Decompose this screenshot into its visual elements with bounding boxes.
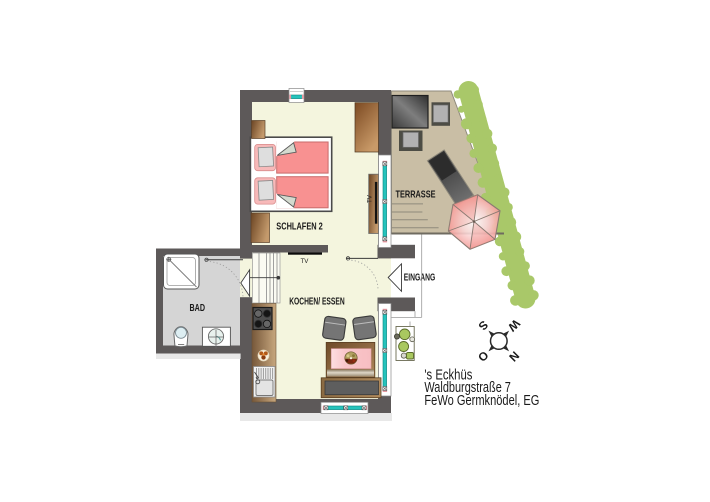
svg-text:EINGANG: EINGANG [404, 272, 436, 283]
svg-text:KOCHEN/ ESSEN: KOCHEN/ ESSEN [289, 296, 345, 307]
svg-text:TERRASSE: TERRASSE [396, 189, 436, 200]
svg-text:SCHLAFEN 2: SCHLAFEN 2 [276, 222, 323, 233]
svg-text:TV: TV [367, 194, 374, 203]
svg-text:TV: TV [301, 258, 310, 265]
svg-text:FeWo Germknödel, EG: FeWo Germknödel, EG [424, 393, 539, 409]
svg-text:BAD: BAD [190, 303, 206, 314]
